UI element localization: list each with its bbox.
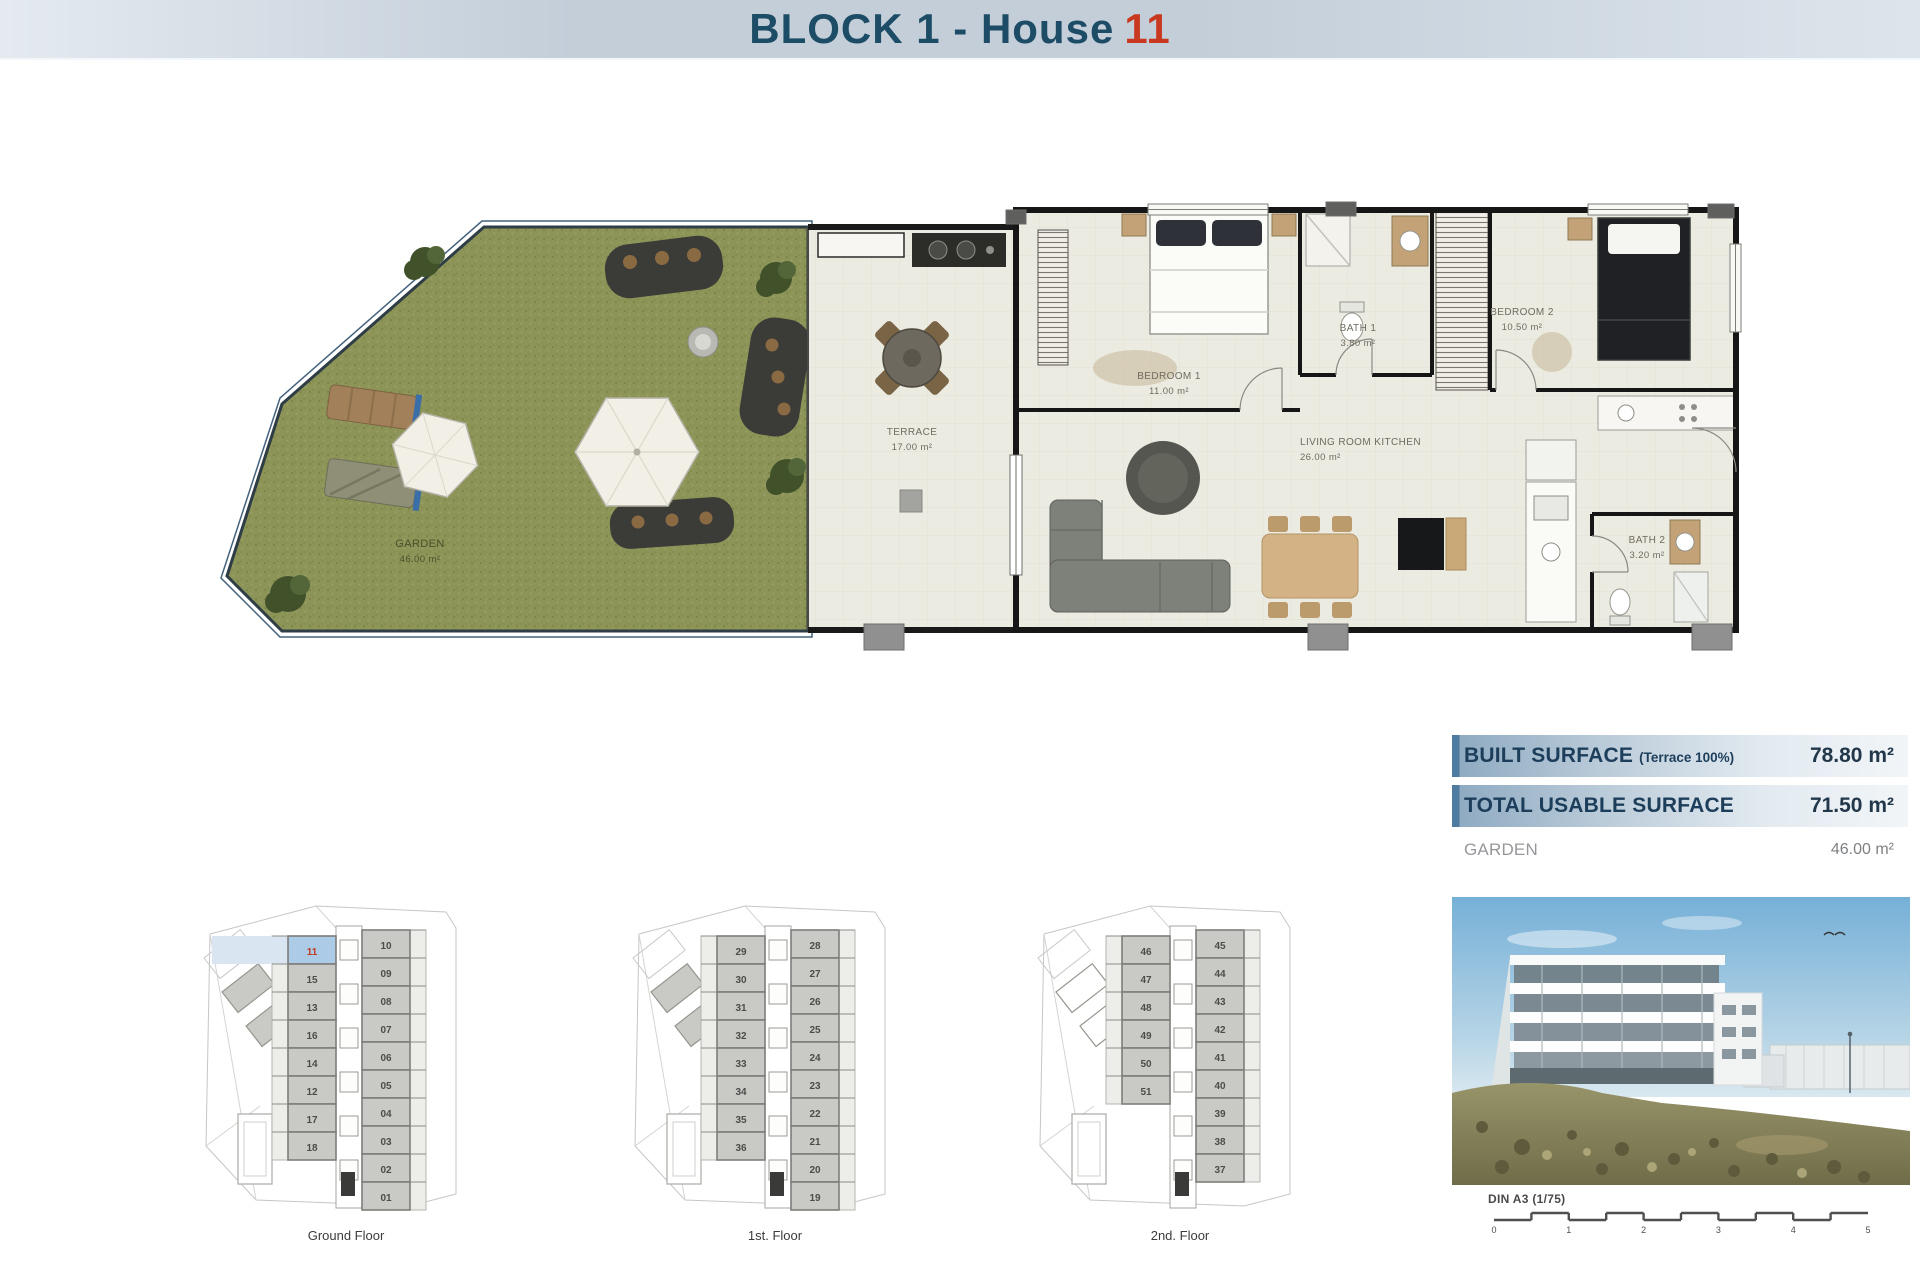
svg-text:03: 03 (380, 1137, 392, 1148)
mini-plan-ground-floor: 111513161412171810090807060504030201 (196, 900, 496, 1215)
svg-text:04: 04 (380, 1109, 392, 1120)
din-caption: DIN A3 (1/75) (1488, 1192, 1886, 1206)
caption-second-floor: 2nd. Floor (1030, 1228, 1330, 1243)
svg-text:0: 0 (1491, 1225, 1496, 1235)
svg-text:18: 18 (306, 1143, 318, 1154)
terrace-table (873, 319, 950, 396)
svg-text:09: 09 (380, 969, 392, 980)
svg-text:1: 1 (1566, 1225, 1571, 1235)
svg-text:49: 49 (1140, 1031, 1152, 1042)
svg-text:48: 48 (1140, 1003, 1152, 1014)
scale-bar: 012345 (1486, 1207, 1876, 1237)
caption-ground-floor: Ground Floor (196, 1228, 496, 1243)
svg-text:47: 47 (1140, 975, 1152, 986)
garden-surface-value: 46.00 m² (1831, 841, 1894, 859)
room-label-bath2: BATH 2 3.20 m² (1629, 534, 1666, 562)
svg-text:39: 39 (1214, 1109, 1226, 1120)
svg-text:10: 10 (380, 941, 392, 952)
room-label-bedroom2: BEDROOM 2 10.50 m² (1490, 306, 1554, 334)
garden-surface-row: GARDEN 46.00 m² (1452, 835, 1908, 865)
svg-text:17: 17 (306, 1115, 318, 1126)
svg-text:30: 30 (735, 975, 747, 986)
usable-surface-row: TOTAL USABLE SURFACE 71.50 m² (1452, 785, 1908, 827)
built-surface-value: 78.80 m² (1810, 744, 1894, 768)
svg-text:24: 24 (809, 1053, 821, 1064)
built-surface-label: BUILT SURFACE (1464, 744, 1633, 767)
wardrobe-hall (1436, 212, 1488, 390)
main-floor-plan: GARDEN 46.00 m² TERRACE 17.00 m² BEDROOM… (200, 200, 1760, 670)
caption-first-floor: 1st. Floor (625, 1228, 925, 1243)
floor-plan-drawing (200, 200, 1760, 670)
page-title: BLOCK 1 - House11 (749, 5, 1170, 53)
svg-text:07: 07 (380, 1025, 392, 1036)
svg-text:34: 34 (735, 1087, 747, 1098)
room-label-bedroom1: BEDROOM 1 11.00 m² (1137, 370, 1201, 398)
svg-text:46: 46 (1140, 947, 1152, 958)
scale-block: DIN A3 (1/75) 012345 (1486, 1192, 1886, 1242)
svg-text:22: 22 (809, 1109, 821, 1120)
surface-summary-table: BUILT SURFACE (Terrace 100%) 78.80 m² TO… (1452, 735, 1908, 873)
svg-text:3: 3 (1716, 1225, 1721, 1235)
svg-text:44: 44 (1214, 969, 1226, 980)
usable-surface-label: TOTAL USABLE SURFACE (1464, 794, 1734, 818)
svg-text:15: 15 (306, 975, 318, 986)
svg-text:31: 31 (735, 1003, 747, 1014)
svg-text:12: 12 (306, 1087, 318, 1098)
page-header: BLOCK 1 - House11 (0, 0, 1920, 60)
svg-text:20: 20 (809, 1165, 821, 1176)
room-label-terrace: TERRACE 17.00 m² (887, 426, 938, 454)
svg-text:27: 27 (809, 969, 821, 980)
svg-text:13: 13 (306, 1003, 318, 1014)
svg-text:40: 40 (1214, 1081, 1226, 1092)
svg-text:4: 4 (1791, 1225, 1796, 1235)
svg-text:5: 5 (1865, 1225, 1870, 1235)
svg-text:51: 51 (1140, 1087, 1152, 1098)
svg-text:38: 38 (1214, 1137, 1226, 1148)
house-number: 11 (1124, 5, 1170, 52)
svg-text:43: 43 (1214, 997, 1226, 1008)
svg-text:33: 33 (735, 1059, 747, 1070)
svg-text:41: 41 (1214, 1053, 1226, 1064)
usable-surface-value: 71.50 m² (1810, 794, 1894, 818)
svg-text:16: 16 (306, 1031, 318, 1042)
built-surface-note: (Terrace 100%) (1639, 750, 1734, 765)
garden-surface-label: GARDEN (1464, 840, 1538, 860)
mini-plan-first-floor: 293031323334353628272625242322212019 (625, 900, 925, 1215)
svg-text:05: 05 (380, 1081, 392, 1092)
planter (900, 490, 922, 512)
svg-text:06: 06 (380, 1053, 392, 1064)
room-label-living-room-kitchen: LIVING ROOM KITCHEN 26.00 m² (1300, 436, 1421, 464)
svg-text:28: 28 (809, 941, 821, 952)
garden-area (221, 221, 814, 637)
svg-text:19: 19 (809, 1193, 821, 1204)
svg-text:02: 02 (380, 1165, 392, 1176)
building-photo (1452, 897, 1910, 1185)
terrace-storage (818, 233, 904, 257)
svg-text:45: 45 (1214, 941, 1226, 952)
svg-text:11: 11 (307, 947, 318, 958)
svg-text:23: 23 (809, 1081, 821, 1092)
svg-text:50: 50 (1140, 1059, 1152, 1070)
mini-plan-second-floor: 464748495051454443424140393837 (1030, 900, 1330, 1215)
wardrobe (1038, 230, 1068, 365)
svg-text:2: 2 (1641, 1225, 1646, 1235)
svg-text:42: 42 (1214, 1025, 1226, 1036)
svg-text:37: 37 (1214, 1165, 1226, 1176)
room-label-garden: GARDEN 46.00 m² (395, 537, 444, 567)
svg-text:36: 36 (735, 1143, 747, 1154)
svg-text:01: 01 (380, 1193, 392, 1204)
svg-text:21: 21 (809, 1137, 821, 1148)
svg-text:25: 25 (809, 1025, 821, 1036)
room-label-bath1: BATH 1 3.80 m² (1340, 322, 1377, 350)
svg-text:08: 08 (380, 997, 392, 1008)
brochure-page: { "header": { "title": "BLOCK 1 - House"… (0, 0, 1920, 1280)
built-surface-row: BUILT SURFACE (Terrace 100%) 78.80 m² (1452, 735, 1908, 777)
svg-text:32: 32 (735, 1031, 747, 1042)
svg-text:14: 14 (306, 1059, 318, 1070)
page-title-text: BLOCK 1 - House (749, 5, 1114, 52)
svg-text:29: 29 (735, 947, 747, 958)
bbq-icon (912, 233, 1006, 267)
svg-text:35: 35 (735, 1115, 747, 1126)
svg-text:26: 26 (809, 997, 821, 1008)
